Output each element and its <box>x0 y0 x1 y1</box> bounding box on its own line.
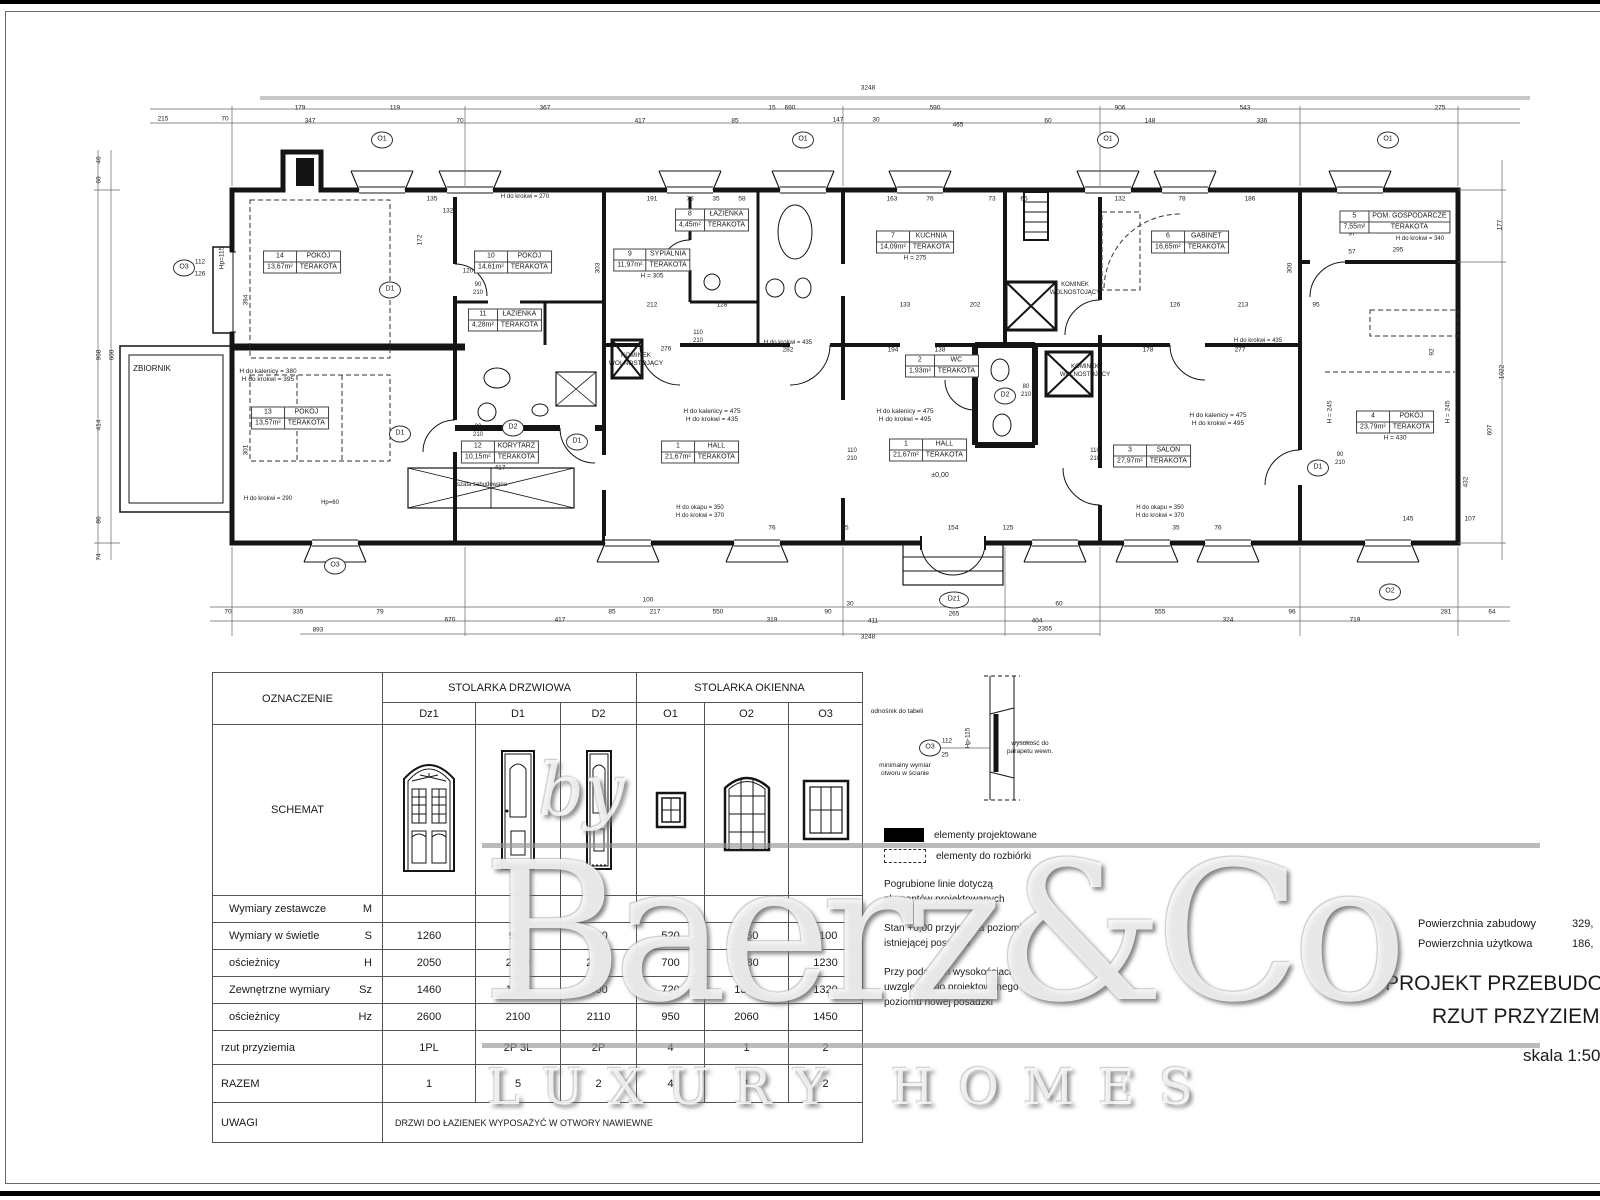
dimension-label: 76 <box>686 196 693 203</box>
room-name: POKÓJ <box>296 251 340 262</box>
table-row-label: Wymiary w świetleS <box>213 923 383 950</box>
dimension-label: 112 <box>195 259 205 266</box>
dimension-label: 319 <box>767 617 778 624</box>
dimension-label: 96 <box>1288 609 1295 616</box>
room-finish: TERAKOTA <box>1184 242 1228 253</box>
room-finish: TERAKOTA <box>296 262 340 273</box>
col-header-d2: D2 <box>561 703 637 725</box>
room-label-4: 4POKÓJ23,79m²TERAKOTAH = 430 <box>1356 411 1434 434</box>
projected-elements-swatch <box>884 828 924 842</box>
dimension-label: 303 <box>595 263 602 274</box>
dimension-label: 107 <box>1465 516 1476 523</box>
dimension-label: 74 <box>96 553 103 560</box>
dimension-label: 15 <box>768 105 775 112</box>
table-value-cell: 2100 <box>476 1004 561 1031</box>
plan-annotation: H do okapu = 350H do krokwi = 370 <box>1136 505 1184 520</box>
dimension-label: 276 <box>661 346 672 353</box>
dimension-label: 550 <box>713 609 724 616</box>
dimension-label: 120 <box>463 268 474 275</box>
dimension-label: 65 <box>1020 196 1027 203</box>
table-value-cell: 2P <box>561 1031 637 1065</box>
room-area: 10,15m² <box>461 452 494 463</box>
dimension-label: 367 <box>540 105 551 112</box>
table-value-cell: 2P 3L <box>476 1031 561 1065</box>
room-area: 21,67m² <box>890 450 923 461</box>
dimension-label: H = 245 <box>1445 401 1452 424</box>
dimension-label: 100 <box>643 597 654 604</box>
reference-marker-d1: D1 <box>1307 460 1329 477</box>
table-value-cell: 5 <box>476 1065 561 1103</box>
room-number: 2 <box>905 355 934 366</box>
reference-marker-o3: O3 <box>324 558 346 575</box>
room-finish: TERAKOTA <box>497 320 541 331</box>
room-label-6: 6GABINET16,65m²TERAKOTA <box>1151 231 1229 254</box>
reference-marker-o1: O1 <box>1377 132 1399 149</box>
table-value-cell <box>561 896 637 923</box>
plan-annotation: minimalny wymiarotworu w ścianie <box>879 762 931 778</box>
legend-item-projected: elementy projektowane <box>884 828 1144 842</box>
dimension-label: 417 <box>555 617 566 624</box>
reference-marker-d1: D1 <box>566 434 588 451</box>
room-name: WC <box>934 355 978 366</box>
dimension-label: 968 <box>96 350 103 361</box>
table-value-cell: 2600 <box>383 1004 476 1031</box>
room-name: SALON <box>1146 445 1190 456</box>
legend-note: Stan +0,00 przyjęto na poziomieistniejąc… <box>884 921 1144 951</box>
room-number: 4 <box>1357 411 1390 422</box>
plan-annotation: H do krokwi = 290 <box>244 496 292 504</box>
table-row-label: ościeżnicyHz <box>213 1004 383 1031</box>
dimension-label: 277 <box>1235 347 1246 354</box>
room-label-11: 11ŁAZIENKA4,28m²TERAKOTA <box>468 309 542 332</box>
usable-area-value: 186, <box>1572 938 1593 950</box>
dimension-label: 217 <box>650 609 661 616</box>
built-area-value: 329, <box>1572 918 1593 930</box>
room-area: 7,55m² <box>1340 222 1369 233</box>
table-value-cell: 520 <box>637 923 705 950</box>
room-number: 5 <box>1340 211 1369 222</box>
room-label-1: 1HALL21,67m²TERAKOTA <box>661 441 739 464</box>
col-header-d1: D1 <box>476 703 561 725</box>
dimension-label: H = 245 <box>1327 401 1334 424</box>
room-area: 14,09m² <box>877 242 910 253</box>
room-name: POKÓJ <box>1389 411 1433 422</box>
col-header-o3: O3 <box>789 703 863 725</box>
room-name: SYPIALNIA <box>646 249 690 260</box>
dimension-label: 906 <box>1115 105 1126 112</box>
dimension-label: 417 <box>635 118 646 125</box>
plan-annotation: 90210 <box>1335 452 1345 467</box>
table-value-cell: 700 <box>561 923 637 950</box>
table-value-cell: 2 <box>789 1031 863 1065</box>
plan-annotation: KOMINEKWOLNOSTOJĄCY <box>1060 364 1110 379</box>
room-name: ŁAZIENKA <box>704 209 748 220</box>
room-area: 1,93m² <box>905 366 934 377</box>
table-value-cell: 700 <box>637 950 705 977</box>
dimension-label: 690 <box>785 105 796 112</box>
table-value-cell: 950 <box>637 1004 705 1031</box>
dimension-label: 600 <box>109 350 116 361</box>
table-value-cell <box>637 896 705 923</box>
plan-annotation: KOMINEKWOLNOSTOJĄCY <box>609 352 663 368</box>
table-row-label: ościeżnicyH <box>213 950 383 977</box>
reference-marker-d1: D1 <box>389 426 411 443</box>
dimension-label: 45 <box>841 525 848 532</box>
plan-annotation: Hp=60 <box>321 500 339 508</box>
room-area: 16,65m² <box>1152 242 1185 253</box>
table-value-cell: 1450 <box>789 1004 863 1031</box>
plan-annotation: H do krokwi = 385 <box>1391 188 1439 196</box>
dimension-label: 132 <box>1115 196 1126 203</box>
dimension-label: 281 <box>1441 609 1452 616</box>
table-row-label: Wymiary zestawczeM <box>213 896 383 923</box>
room-finish: TERAKOTA <box>704 220 748 231</box>
dimension-label: 275 <box>1435 105 1446 112</box>
table-value-cell <box>789 896 863 923</box>
dimension-label: 191 <box>647 196 658 203</box>
room-finish: TERAKOTA <box>922 450 966 461</box>
room-extra: 417 <box>461 464 539 472</box>
reference-marker-o1: O1 <box>1097 132 1119 149</box>
room-area: 4,28m² <box>468 320 497 331</box>
room-label-14: 14POKÓJ13,67m²TERAKOTA <box>263 251 341 274</box>
scale-label: skala 1:50 <box>1523 1046 1600 1066</box>
room-finish: TERAKOTA <box>909 242 953 253</box>
table-value-cell <box>383 896 476 923</box>
dimension-label: 177 <box>1497 220 1504 231</box>
table-value-cell: 900 <box>476 923 561 950</box>
dimension-label: 126 <box>195 271 206 278</box>
dimension-label: 186 <box>1245 196 1256 203</box>
table-value-cell: 800 <box>561 977 637 1004</box>
dimension-label: 133 <box>900 302 911 309</box>
reference-marker-o3: O3 <box>173 260 195 277</box>
dimension-label: 347 <box>305 118 316 125</box>
dimension-label: 172 <box>417 235 424 246</box>
dimension-label: 202 <box>970 302 981 309</box>
dimension-label: 607 <box>1487 425 1494 436</box>
dimension-label: 295 <box>1393 247 1404 254</box>
plan-annotation: ZBIORNIK <box>133 364 171 374</box>
reference-marker-o1: O1 <box>371 132 393 149</box>
table-value-cell: 1 <box>383 1065 476 1103</box>
dimension-label: 1022 <box>1499 365 1506 379</box>
room-finish: TERAKOTA <box>934 366 978 377</box>
dimension-label: 301 <box>243 445 250 456</box>
reference-marker-dz1: Dz1 <box>939 592 969 609</box>
dimension-label: 70 <box>224 609 231 616</box>
dimension-label: 265 <box>949 611 960 618</box>
room-label-7: 7KUCHNIA14,09m²TERAKOTAH = 275 <box>876 231 954 254</box>
table-value-cell: 1230 <box>789 950 863 977</box>
dimension-label: 543 <box>1240 105 1251 112</box>
dimension-label: 147 <box>833 117 844 124</box>
dimension-label: 404 <box>1032 618 1043 625</box>
plan-annotation: KOMINEKWOLNOSTOJĄCY <box>1050 282 1100 297</box>
plan-annotation: H do kalenicy = 475H do krokwi = 495 <box>876 408 933 424</box>
room-number: 1 <box>662 441 695 452</box>
dimension-label: 215 <box>158 116 169 123</box>
dimension-label: 76 <box>1214 525 1221 532</box>
room-number: 10 <box>475 251 508 262</box>
dimension-label: 138 <box>935 347 946 354</box>
dimension-label: 2355 <box>1038 626 1052 633</box>
dimension-label: 670 <box>445 617 456 624</box>
dimension-label: 60 <box>1055 601 1062 608</box>
room-label-8: 8ŁAZIENKA4,45m²TERAKOTA <box>675 209 749 232</box>
plan-annotation: odnośnik do tabeli <box>871 708 923 716</box>
window-o3-schematic <box>789 725 863 896</box>
table-group-windows: STOLARKA OKIENNA <box>637 673 863 703</box>
room-area: 14,61m² <box>475 262 508 273</box>
dimension-label: 86 <box>96 516 103 523</box>
dimension-label: 145 <box>1403 516 1414 523</box>
plan-annotation: 110210 <box>847 448 857 463</box>
dimension-label: 85 <box>608 609 615 616</box>
dimension-label: 893 <box>313 627 324 634</box>
dimension-label: 64 <box>1488 609 1495 616</box>
plan-annotation: H do kalenicy = 475H do krokwi = 495 <box>1189 412 1246 428</box>
room-area: 13,67m² <box>264 262 297 273</box>
dimension-label: 394 <box>243 295 250 306</box>
room-label-3: 3SALON27,97m²TERAKOTA <box>1113 445 1191 468</box>
room-extra: H = 275 <box>876 254 954 262</box>
room-label-13: 13POKÓJ13,57m²TERAKOTA <box>251 407 329 430</box>
plan-annotation: H do okapu = 350H do krokwi = 370 <box>676 505 724 520</box>
dimension-label: 300 <box>1287 263 1294 274</box>
table-value-cell: 4 <box>637 1031 705 1065</box>
dimension-label: 78 <box>1178 196 1185 203</box>
door-dz1-schematic <box>383 725 476 896</box>
dimension-label: 555 <box>1155 609 1166 616</box>
dimension-label: 30 <box>846 601 853 608</box>
table-corner-label: OZNACZENIE <box>213 673 383 725</box>
reference-marker-o2: O2 <box>1379 584 1401 601</box>
room-number: 3 <box>1114 445 1147 456</box>
legend-note: Pogrubione linie dotycząelementów projek… <box>884 877 1144 907</box>
room-name: HALL <box>922 439 966 450</box>
room-label-12: 12KORYTARZ10,15m²TERAKOTA417 <box>461 441 539 464</box>
dimension-label: 411 <box>868 618 878 625</box>
schemat-row-label: SCHEMAT <box>213 725 383 896</box>
room-label-10: 10POKÓJ14,61m²TERAKOTA <box>474 251 552 274</box>
table-value-cell: 1 <box>705 1065 789 1103</box>
window-o1-schematic <box>637 725 705 896</box>
reference-marker-o1: O1 <box>792 132 814 149</box>
table-value-cell: 2020 <box>561 950 637 977</box>
dimension-label: 92 <box>1429 348 1436 355</box>
dimension-label: 414 <box>96 420 103 431</box>
legend-item-demolition: elementy do rozbiórki <box>884 849 1144 863</box>
plan-annotation: 110210 <box>693 330 703 345</box>
door-d2-schematic <box>561 725 637 896</box>
room-label-2: 2WC1,93m²TERAKOTA <box>905 355 979 378</box>
dimension-label: 125 <box>1003 525 1014 532</box>
room-number: 13 <box>252 407 285 418</box>
dimension-label: 57 <box>1348 249 1355 256</box>
joinery-schedule-table: OZNACZENIE STOLARKA DRZWIOWA STOLARKA OK… <box>212 672 863 1143</box>
dimension-label: 590 <box>930 105 941 112</box>
table-value-cell: 2060 <box>705 1004 789 1031</box>
room-name: KUCHNIA <box>909 231 953 242</box>
dimension-label: 282 <box>783 347 794 354</box>
dimension-label: 465 <box>953 122 964 129</box>
plan-annotation: 80210 <box>1021 384 1031 399</box>
dimension-label: 179 <box>295 105 306 112</box>
plan-annotation: szafa zabudowana <box>457 482 507 490</box>
dimension-label: 35 <box>712 196 719 203</box>
plan-annotation: H do kalenicy = 380H do krokwi = 395 <box>239 368 296 384</box>
dimension-label: 148 <box>1145 118 1156 125</box>
room-extra: H = 430 <box>1356 434 1434 442</box>
room-number: 12 <box>461 441 494 452</box>
dimension-label: 95 <box>1312 302 1319 309</box>
room-area: 23,79m² <box>1357 422 1390 433</box>
dimension-label: 76 <box>926 196 933 203</box>
plan-annotation: wysokość doparapetu wewn. <box>1007 740 1053 756</box>
dimension-label: 154 <box>948 525 959 532</box>
dimension-label: 3248 <box>861 85 875 92</box>
table-value-cell: 1 <box>705 1031 789 1065</box>
reference-marker-d2: D2 <box>994 388 1016 405</box>
dimension-label: 178 <box>1143 347 1154 354</box>
dimension-label: 30 <box>872 117 879 124</box>
plan-annotation: H do krokwi = 435 <box>1234 338 1282 346</box>
room-number: 8 <box>675 209 704 220</box>
room-number: 9 <box>614 249 646 260</box>
dimension-label: 79 <box>376 609 383 616</box>
room-area: 11,97m² <box>614 260 646 271</box>
dimension-label: 432 <box>1463 477 1470 488</box>
table-value-cell: 2 <box>789 1065 863 1103</box>
dimension-label: 336 <box>1257 118 1268 125</box>
table-value-cell: 1340 <box>705 977 789 1004</box>
table-value-cell: 1000 <box>476 977 561 1004</box>
dimension-label: 324 <box>1223 617 1234 624</box>
usable-area-label: Powierzchnia użytkowa <box>1418 938 1532 950</box>
dimension-label: 76 <box>768 525 775 532</box>
room-name: ŁAZIENKA <box>497 309 541 320</box>
room-name: GABINET <box>1184 231 1228 242</box>
room-label-1: 1HALL21,67m²TERAKOTA <box>889 439 967 462</box>
dimension-label: 112 <box>942 738 952 745</box>
dimension-label: Hp=115 <box>219 247 226 269</box>
dimension-label: 335 <box>293 609 304 616</box>
col-header-dz1: Dz1 <box>383 703 476 725</box>
plan-annotation: H do krokwi = 340 <box>1396 236 1444 244</box>
table-value-cell: 4 <box>637 1065 705 1103</box>
room-extra: H = 305 <box>613 272 690 280</box>
table-row-label: Zewnętrzne wymiarySz <box>213 977 383 1004</box>
door-d1-schematic <box>476 725 561 896</box>
dimension-label: 194 <box>888 347 899 354</box>
dimension-label: 126 <box>1170 302 1181 309</box>
table-value-cell <box>705 896 789 923</box>
room-number: 7 <box>877 231 910 242</box>
dimension-label: 119 <box>390 105 400 112</box>
dimension-label: 132 <box>443 208 454 215</box>
room-finish: TERAKOTA <box>646 260 690 271</box>
dimension-label: 70 <box>456 118 463 125</box>
demolition-elements-swatch <box>884 849 926 863</box>
reference-marker-d1: D1 <box>379 282 401 299</box>
table-value-cell: 2 <box>561 1065 637 1103</box>
plan-annotation: 90210 <box>473 282 483 297</box>
room-finish: TERAKOTA <box>1369 222 1450 233</box>
dimension-label: 35 <box>1172 525 1179 532</box>
drawing-title: RZUT PRZYZIEMIA <box>1432 1005 1600 1029</box>
dimension-label: Hp-115 <box>965 728 972 749</box>
room-finish: TERAKOTA <box>1146 456 1190 467</box>
room-label-5: 5POM. GOSPODARCZE7,55m²TERAKOTA <box>1339 211 1450 234</box>
table-value-cell: 2110 <box>561 1004 637 1031</box>
room-finish: TERAKOTA <box>494 452 538 463</box>
room-name: KORYTARZ <box>494 441 538 452</box>
room-number: 14 <box>264 251 297 262</box>
table-value-cell: 1880 <box>705 950 789 977</box>
table-row-label: RAZEM <box>213 1065 383 1103</box>
table-value-cell: 1260 <box>383 923 476 950</box>
plan-annotation: H do kalenicy = 475H do krokwi = 435 <box>683 408 740 424</box>
table-value-cell: 1160 <box>705 923 789 950</box>
plan-annotation: 110210 <box>1090 448 1100 463</box>
built-area-label: Powierzchnia zabudowy <box>1418 918 1536 930</box>
room-name: POKÓJ <box>507 251 551 262</box>
col-header-o2: O2 <box>705 703 789 725</box>
dimension-label: 25 <box>941 752 948 759</box>
table-row-label: rzut przyziemia <box>213 1031 383 1065</box>
dimension-label: 3248 <box>861 634 875 641</box>
table-value-cell: 2050 <box>476 950 561 977</box>
room-area: 21,67m² <box>662 452 695 463</box>
table-value-cell: 1320 <box>789 977 863 1004</box>
plan-annotation: H do krokwi = 270 <box>501 194 549 202</box>
dimension-label: 70 <box>221 116 228 123</box>
room-name: POM. GOSPODARCZE <box>1369 211 1450 222</box>
dimension-label: 90 <box>824 609 831 616</box>
room-finish: TERAKOTA <box>694 452 738 463</box>
dimension-label: 128 <box>717 302 728 309</box>
table-group-doors: STOLARKA DRZWIOWA <box>383 673 637 703</box>
table-row-label: UWAGI <box>213 1103 383 1143</box>
table-value-cell: 1PL <box>383 1031 476 1065</box>
dimension-label: 60 <box>96 176 103 183</box>
room-finish: TERAKOTA <box>1389 422 1433 433</box>
room-area: 27,97m² <box>1114 456 1147 467</box>
legend-notes: Pogrubione linie dotycząelementów projek… <box>884 877 1144 1010</box>
room-number: 1 <box>890 439 923 450</box>
table-value-cell <box>476 896 561 923</box>
dimension-label: 58 <box>738 196 745 203</box>
table-remark: DRZWI DO ŁAZIENEK WYPOSAŻYĆ W OTWORY NAW… <box>383 1103 863 1143</box>
room-number: 6 <box>1152 231 1185 242</box>
room-finish: TERAKOTA <box>284 418 328 429</box>
dimension-label: 213 <box>1238 302 1249 309</box>
dimension-label: 60 <box>1044 118 1051 125</box>
dimension-label: 46 <box>96 156 103 163</box>
reference-marker-o3: O3 <box>919 740 941 757</box>
dimension-label: 212 <box>647 302 658 309</box>
legend-item-label: elementy do rozbiórki <box>936 851 1031 862</box>
room-name: HALL <box>694 441 738 452</box>
room-area: 13,57m² <box>252 418 285 429</box>
room-number: 11 <box>468 309 497 320</box>
reference-marker-d2: D2 <box>502 420 524 437</box>
legend: elementy projektowane elementy do rozbió… <box>884 828 1144 1010</box>
dimension-label: 135 <box>427 196 438 203</box>
project-title: PROJEKT PRZEBUDOWY <box>1385 972 1600 996</box>
plan-annotation: ±0,00 <box>931 472 948 481</box>
